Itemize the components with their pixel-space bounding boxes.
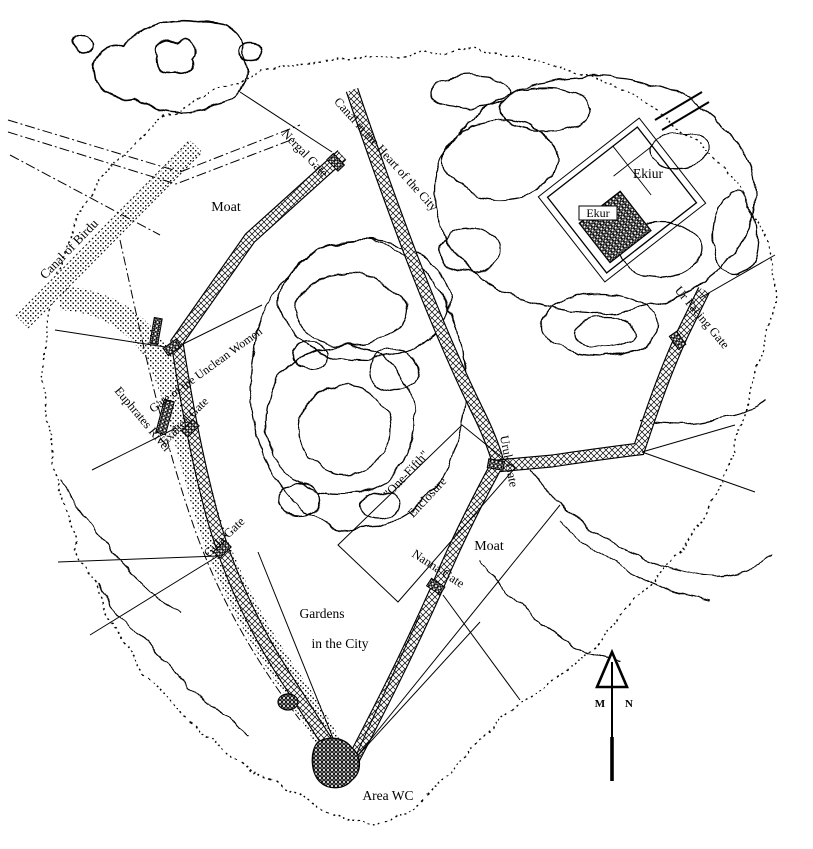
label-ekur: Ekur xyxy=(586,206,609,220)
label-gardens-line1: Gardens xyxy=(300,606,345,621)
label-compass-north: N xyxy=(625,698,633,710)
site-map-drawing: Canal of Birdu Moat Canal in the Heart o… xyxy=(0,0,813,849)
label-moat-northwest: Moat xyxy=(211,200,241,215)
label-ekiur: Ekiur xyxy=(633,166,663,181)
label-gardens-line2: in the City xyxy=(312,636,369,651)
label-moat-southeast: Moat xyxy=(474,539,504,554)
label-area-wc: Area WC xyxy=(362,788,413,803)
north-arrow xyxy=(597,652,627,781)
northwest-outlying-mounds xyxy=(72,21,262,112)
label-compass-magnetic: M xyxy=(595,698,606,710)
city-wall-west xyxy=(177,155,347,772)
label-one-fifth-enclosure-line2: Enclosure xyxy=(405,474,450,520)
map-canvas: Canal of Birdu Moat Canal in the Heart o… xyxy=(0,0,813,849)
